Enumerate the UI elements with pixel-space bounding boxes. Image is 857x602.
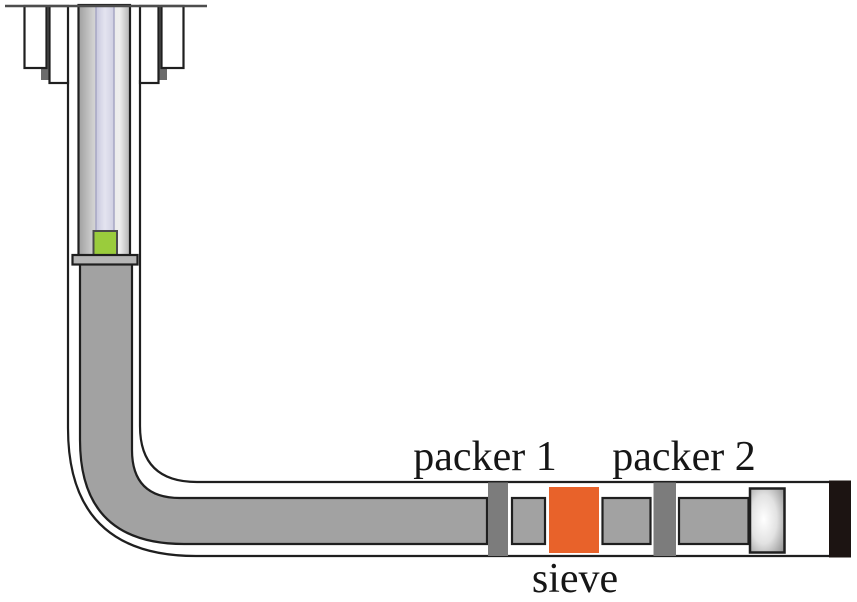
wellhead-flange-inner-right [140,6,159,83]
casing-inner-line [140,80,830,482]
sieve-screen [549,487,599,553]
tubing-segment-2 [603,498,651,544]
well-schematic-figure: packer 1 packer 2 sieve [0,0,857,602]
packer-1 [488,483,508,557]
packer-1-label: packer 1 [413,434,556,480]
tubing-segment-3 [679,498,749,544]
well-schematic-canvas: packer 1 packer 2 sieve [0,0,857,602]
wellhead-flange-inner-left [50,6,69,83]
packer-2-label: packer 2 [612,434,755,480]
casing-end-cap [829,481,851,558]
end-collar [750,489,785,553]
wellhead-flange-outer-left [25,6,47,68]
casing-outer-line [68,80,851,556]
tubing-segment-1 [512,498,545,544]
sieve-label: sieve [532,556,618,602]
tubing-hanger-flange [73,255,138,265]
packer-2 [654,483,677,557]
inner-string [96,6,114,232]
green-plug [94,231,118,257]
wellhead-flange-outer-right [162,6,184,68]
